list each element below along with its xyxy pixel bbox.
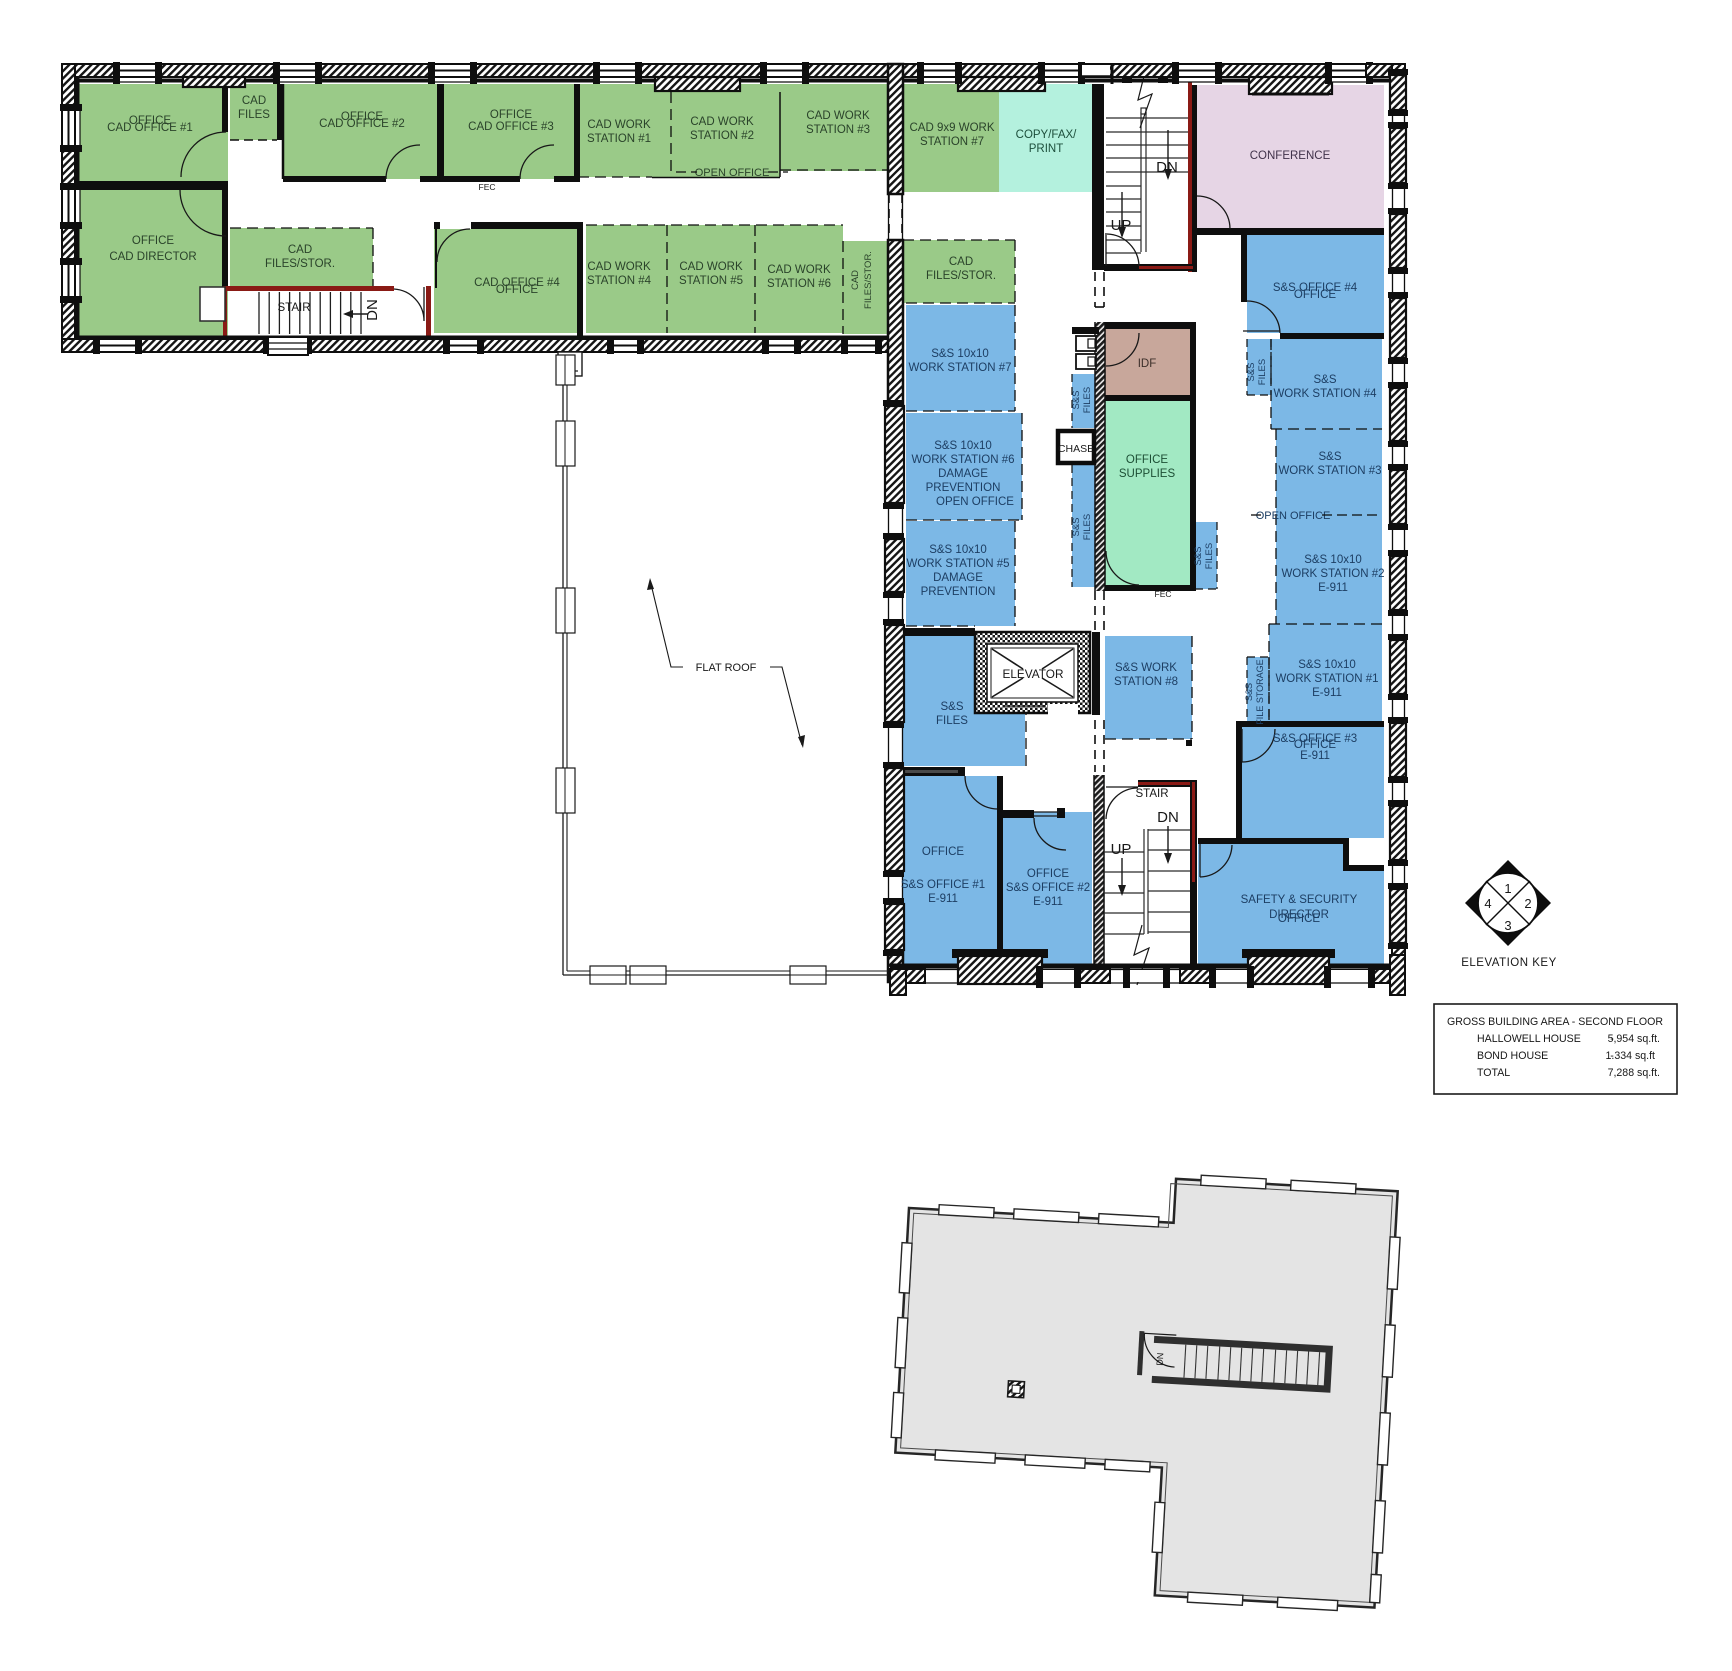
svg-text:CAD OFFICE #3: CAD OFFICE #3 bbox=[468, 121, 554, 133]
svg-text:CHASE: CHASE bbox=[1058, 443, 1094, 455]
svg-text:S&S OFFICE #2: S&S OFFICE #2 bbox=[1006, 882, 1090, 894]
svg-text:OFFICE: OFFICE bbox=[1027, 868, 1069, 880]
svg-text:S&S WORK: S&S WORK bbox=[1115, 662, 1177, 674]
svg-text:STAIR: STAIR bbox=[1135, 788, 1168, 800]
svg-text:WORK STATION #2: WORK STATION #2 bbox=[1281, 568, 1384, 580]
svg-text:OPEN OFFICE: OPEN OFFICE bbox=[695, 167, 770, 179]
svg-text:SUPPLIES: SUPPLIES bbox=[1119, 468, 1176, 480]
svg-text:UP: UP bbox=[1111, 841, 1132, 858]
svg-text:CAD WORK: CAD WORK bbox=[767, 264, 831, 276]
svg-text:UP: UP bbox=[1111, 217, 1132, 234]
svg-text:HALLOWELL HOUSE: HALLOWELL HOUSE bbox=[1477, 1033, 1581, 1045]
svg-text:STATION #8: STATION #8 bbox=[1114, 676, 1178, 688]
svg-text:CAD: CAD bbox=[288, 244, 312, 256]
svg-text:CAD OFFICE #1: CAD OFFICE #1 bbox=[107, 122, 193, 134]
svg-text:STATION #4: STATION #4 bbox=[587, 275, 652, 287]
svg-text:PREVENTION: PREVENTION bbox=[926, 482, 1001, 494]
svg-text:WORK STATION #3: WORK STATION #3 bbox=[1278, 465, 1381, 477]
svg-text:SAFETY & SECURITY: SAFETY & SECURITY bbox=[1241, 894, 1358, 906]
svg-text:S&S: S&S bbox=[1193, 546, 1204, 565]
svg-text:E-911: E-911 bbox=[928, 893, 958, 905]
svg-text:OFFICE: OFFICE bbox=[922, 846, 964, 858]
svg-text:S&S 10x10: S&S 10x10 bbox=[1304, 554, 1362, 566]
svg-text:STATION #7: STATION #7 bbox=[920, 136, 984, 148]
svg-text:DN: DN bbox=[1157, 809, 1179, 826]
svg-text:S&S: S&S bbox=[940, 701, 963, 713]
svg-text:FEC: FEC bbox=[1155, 589, 1172, 599]
svg-text:CAD WORK: CAD WORK bbox=[587, 119, 651, 131]
svg-text:OFFICE: OFFICE bbox=[1278, 913, 1320, 925]
svg-text:DN: DN bbox=[1155, 1352, 1166, 1366]
svg-text:FILES: FILES bbox=[238, 109, 270, 121]
svg-text:2: 2 bbox=[1524, 896, 1531, 911]
svg-text:ELEVATOR: ELEVATOR bbox=[1003, 667, 1064, 681]
svg-text:STATION #2: STATION #2 bbox=[690, 130, 754, 142]
svg-text:IDF: IDF bbox=[1138, 358, 1157, 370]
svg-text:S&S 10x10: S&S 10x10 bbox=[931, 348, 989, 360]
svg-text:4: 4 bbox=[1484, 896, 1491, 911]
svg-text:WORK STATION #4: WORK STATION #4 bbox=[1273, 388, 1377, 400]
svg-text:1: 1 bbox=[1504, 881, 1511, 896]
svg-text:OPEN OFFICE: OPEN OFFICE bbox=[936, 496, 1014, 508]
svg-text:E-911: E-911 bbox=[1312, 687, 1342, 699]
svg-text:BOND HOUSE: BOND HOUSE bbox=[1477, 1050, 1548, 1062]
svg-text:DAMAGE: DAMAGE bbox=[933, 572, 983, 584]
svg-text:CAD OFFICE #2: CAD OFFICE #2 bbox=[319, 118, 405, 130]
svg-text:FILES: FILES bbox=[936, 715, 968, 727]
svg-text:STATION #5: STATION #5 bbox=[679, 275, 743, 287]
svg-text:FILES: FILES bbox=[1204, 543, 1215, 569]
svg-text:S&S: S&S bbox=[1313, 374, 1336, 386]
svg-text:OFFICE: OFFICE bbox=[132, 235, 174, 247]
svg-text:WORK STATION #1: WORK STATION #1 bbox=[1275, 673, 1378, 685]
svg-text:PREVENTION: PREVENTION bbox=[921, 586, 996, 598]
svg-text:OFFICE: OFFICE bbox=[490, 109, 532, 121]
svg-text:GROSS BUILDING AREA - SECOND F: GROSS BUILDING AREA - SECOND FLOOR bbox=[1447, 1016, 1663, 1028]
svg-text:STATION #1: STATION #1 bbox=[587, 133, 651, 145]
svg-text:CAD DIRECTOR: CAD DIRECTOR bbox=[109, 251, 196, 263]
svg-text:S&S 10x10: S&S 10x10 bbox=[929, 544, 987, 556]
svg-text:FILES: FILES bbox=[1082, 387, 1093, 413]
svg-text:ELEVATION KEY: ELEVATION KEY bbox=[1461, 957, 1557, 969]
svg-text:5,954 sq.ft.: 5,954 sq.ft. bbox=[1608, 1033, 1660, 1045]
svg-text:CONFERENCE: CONFERENCE bbox=[1250, 150, 1331, 162]
svg-text:FLAT ROOF: FLAT ROOF bbox=[696, 662, 757, 674]
svg-text:COPY/FAX/: COPY/FAX/ bbox=[1016, 129, 1078, 141]
svg-text:STATION #3: STATION #3 bbox=[806, 124, 870, 136]
svg-text:1.334 sq.ft: 1.334 sq.ft bbox=[1606, 1050, 1656, 1062]
svg-text:CAD WORK: CAD WORK bbox=[806, 110, 870, 122]
svg-text:CAD: CAD bbox=[242, 95, 266, 107]
svg-text:FILES/STOR.: FILES/STOR. bbox=[926, 270, 996, 282]
svg-text:DAMAGE: DAMAGE bbox=[938, 468, 988, 480]
svg-text:CAD WORK: CAD WORK bbox=[690, 116, 754, 128]
svg-text:OFFICE: OFFICE bbox=[1294, 289, 1336, 301]
svg-text:S&S 10x10: S&S 10x10 bbox=[1298, 659, 1356, 671]
svg-text:PRINT: PRINT bbox=[1029, 143, 1064, 155]
svg-text:OPEN OFFICE: OPEN OFFICE bbox=[1256, 510, 1331, 522]
svg-text:WORK STATION #7: WORK STATION #7 bbox=[908, 362, 1011, 374]
svg-text:OFFICE: OFFICE bbox=[496, 284, 538, 296]
svg-text:S&S: S&S bbox=[1071, 517, 1082, 536]
svg-text:E-911: E-911 bbox=[1033, 896, 1063, 908]
svg-text:CAD 9x9 WORK: CAD 9x9 WORK bbox=[910, 122, 995, 134]
svg-text:3: 3 bbox=[1504, 918, 1511, 933]
svg-text:FILES: FILES bbox=[1257, 359, 1268, 385]
svg-text:STAIR: STAIR bbox=[277, 302, 310, 314]
svg-text:WORK STATION #6: WORK STATION #6 bbox=[911, 454, 1014, 466]
svg-text:OFFICE: OFFICE bbox=[1126, 454, 1168, 466]
svg-text:FEC: FEC bbox=[479, 182, 496, 192]
svg-text:E-911: E-911 bbox=[1318, 582, 1348, 594]
svg-text:S&S: S&S bbox=[1071, 390, 1082, 409]
svg-text:7,288 sq.ft.: 7,288 sq.ft. bbox=[1608, 1067, 1660, 1079]
svg-text:S&S OFFICE #1: S&S OFFICE #1 bbox=[901, 879, 985, 891]
svg-text:DN: DN bbox=[1156, 159, 1178, 176]
svg-text:FILE STORAGE: FILE STORAGE bbox=[1255, 659, 1265, 724]
svg-text:WORK STATION #5: WORK STATION #5 bbox=[906, 558, 1009, 570]
svg-text:FILES/STOR.: FILES/STOR. bbox=[863, 251, 874, 309]
svg-text:CAD WORK: CAD WORK bbox=[587, 261, 651, 273]
svg-text:DN: DN bbox=[364, 299, 381, 321]
svg-text:STATION #6: STATION #6 bbox=[767, 278, 831, 290]
svg-text:CAD: CAD bbox=[850, 270, 861, 290]
svg-text:S&S: S&S bbox=[1244, 683, 1254, 701]
svg-text:S&S: S&S bbox=[1318, 451, 1341, 463]
svg-text:FILES/STOR.: FILES/STOR. bbox=[265, 258, 335, 270]
svg-text:S&S 10x10: S&S 10x10 bbox=[934, 440, 992, 452]
svg-text:S&S: S&S bbox=[1246, 362, 1257, 381]
svg-text:FILES: FILES bbox=[1082, 514, 1093, 540]
svg-text:CAD: CAD bbox=[949, 256, 973, 268]
svg-text:CAD WORK: CAD WORK bbox=[679, 261, 743, 273]
svg-text:E-911: E-911 bbox=[1300, 750, 1330, 762]
svg-text:TOTAL: TOTAL bbox=[1477, 1067, 1510, 1079]
